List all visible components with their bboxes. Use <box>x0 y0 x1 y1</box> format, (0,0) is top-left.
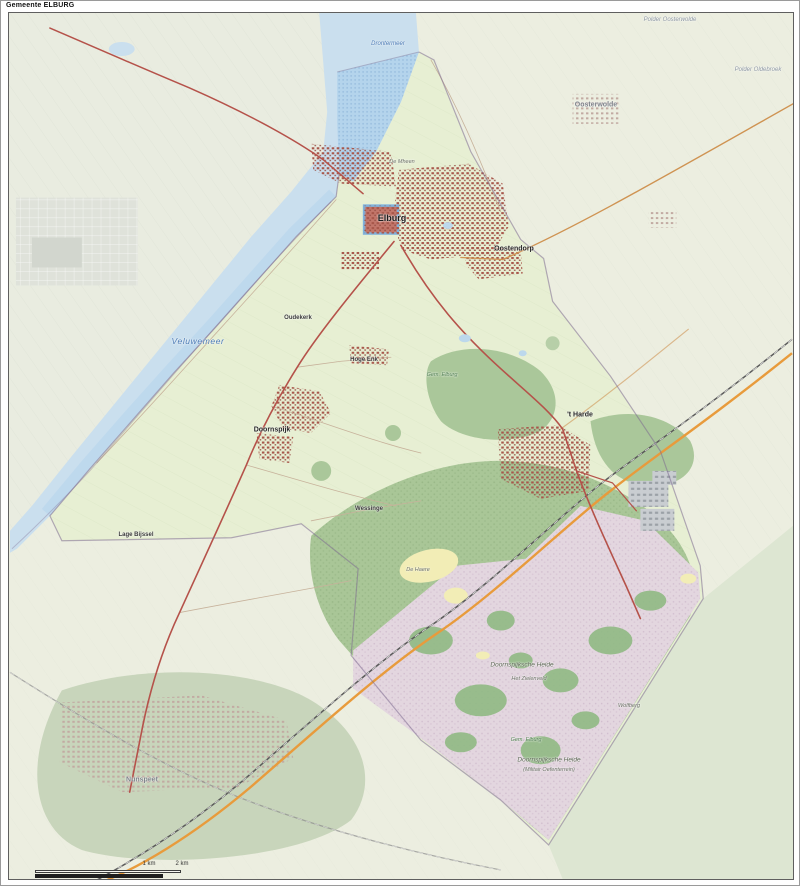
scale-bar-solid <box>35 874 163 878</box>
scale-label: 1 km <box>142 861 155 867</box>
scale-bar-outline <box>35 870 181 873</box>
map-frame: ElburgOostendorpDoornspijk't HardeHoge E… <box>8 12 794 880</box>
page: Gemeente ELBURG <box>0 0 800 886</box>
small-lake <box>109 42 135 56</box>
scale-bar: 1 km2 km <box>35 860 205 878</box>
map-canvas <box>9 13 793 879</box>
urban-oosterwolde-faded <box>573 94 619 124</box>
urban-elburg-east <box>393 164 509 260</box>
map-title: Gemeente ELBURG <box>6 2 74 9</box>
scale-label: 2 km <box>175 861 188 867</box>
